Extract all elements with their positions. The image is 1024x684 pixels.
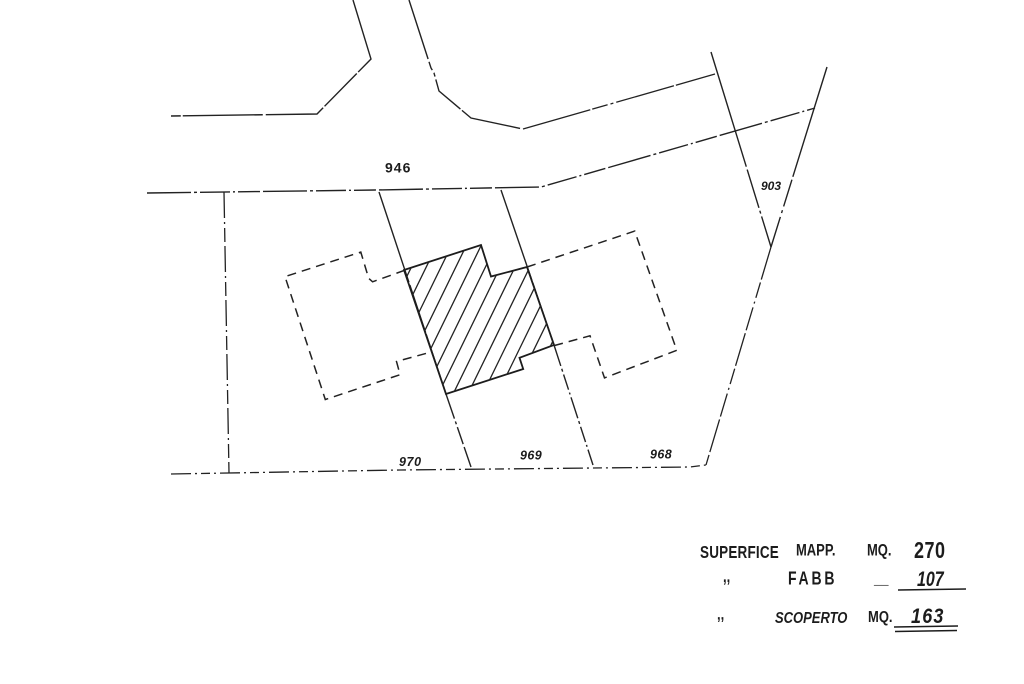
svg-text:MQ.: MQ. <box>867 541 892 560</box>
svg-text:946: 946 <box>385 160 411 176</box>
svg-text:969: 969 <box>520 449 542 463</box>
svg-text:968: 968 <box>650 448 672 462</box>
svg-text:SUPERFICE: SUPERFICE <box>700 543 779 562</box>
svg-text:107: 107 <box>917 567 945 591</box>
svg-text:SCOPERTO: SCOPERTO <box>775 610 847 627</box>
svg-text:903: 903 <box>761 179 781 193</box>
svg-text:970: 970 <box>399 455 422 469</box>
svg-text:,,: ,, <box>717 606 724 623</box>
svg-text:163: 163 <box>911 605 945 629</box>
svg-text:FABB: FABB <box>788 569 837 589</box>
svg-text:MAPP.: MAPP. <box>796 541 835 560</box>
svg-text:270: 270 <box>914 538 946 564</box>
svg-text:__: __ <box>873 569 889 588</box>
svg-text:MQ.: MQ. <box>868 609 893 626</box>
svg-text:,,: ,, <box>723 567 730 586</box>
